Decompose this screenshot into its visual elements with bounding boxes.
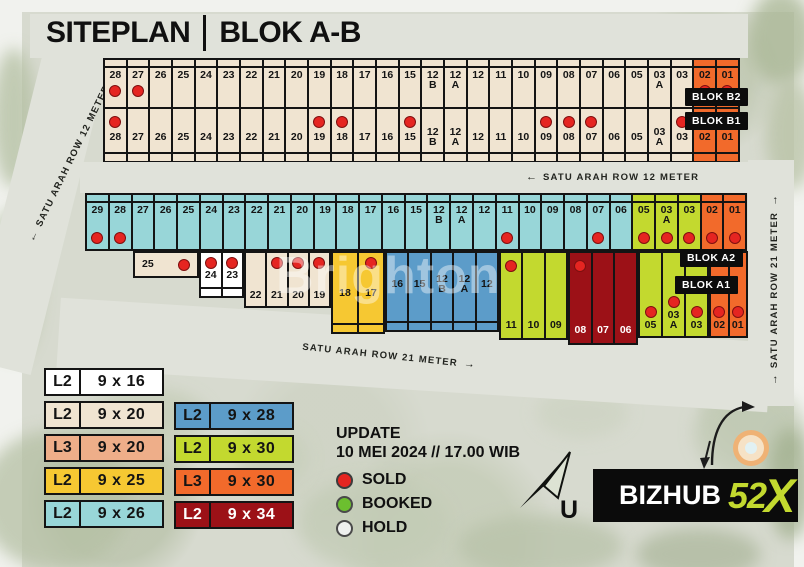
lot-number: 11: [502, 206, 513, 216]
lot-number: 21: [274, 206, 286, 216]
lot-number: 16: [382, 133, 394, 143]
lot-number: 26: [155, 133, 167, 143]
lot-cell-23: 23: [218, 60, 241, 107]
lot-front-strip: [264, 152, 285, 161]
lot-number: 25: [142, 260, 154, 270]
lot-front-strip: [581, 60, 602, 68]
lot-front-strip: [173, 152, 194, 161]
block-a1-group-4: 1817: [331, 251, 385, 334]
lot-cell-09: 09: [546, 253, 566, 338]
sold-dot: [638, 232, 650, 244]
lot-cell-20: 20: [292, 195, 315, 249]
update-block: UPDATE 10 MEI 2024 // 17.00 WIB SOLDBOOK…: [336, 425, 520, 543]
legend-type: L3: [46, 436, 81, 460]
lot-front-strip: [649, 152, 670, 161]
lot-cell-27: 27: [133, 195, 156, 249]
size-legend-column-2: L29 x 28L29 x 30L39 x 30L29 x 34: [174, 402, 294, 534]
sold-dot: [713, 306, 725, 318]
block-b2-row: 282726252423222120191817161512 B12 A1211…: [105, 60, 738, 109]
lot-front-strip: [196, 152, 217, 161]
lot-front-strip: [264, 60, 285, 68]
sold-dot: [563, 116, 575, 128]
lot-front-strip: [332, 60, 353, 68]
legend-size: 9 x 30: [211, 470, 292, 494]
lot-cell-21: 21: [264, 60, 287, 107]
lot-front-strip: [588, 195, 609, 203]
legend-size: 9 x 16: [81, 370, 162, 394]
title-divider: [203, 15, 206, 51]
lot-cell-06: 06: [604, 109, 627, 161]
lot-cell-15: 15: [400, 109, 423, 161]
lot-cell-06: 06: [611, 195, 634, 249]
lot-front-strip: [387, 321, 407, 330]
lot-cell-28: 28: [105, 109, 128, 161]
sold-dot: [501, 232, 513, 244]
lot-front-strip: [292, 195, 313, 203]
lot-front-strip: [611, 195, 632, 203]
lot-cell-11: 11: [490, 109, 513, 161]
lot-cell-06: 06: [615, 253, 636, 343]
lot-cell-08: 08: [565, 195, 588, 249]
lot-cell-07: 07: [593, 253, 616, 343]
lot-cell-16: 16: [377, 60, 400, 107]
legend-size: 9 x 20: [81, 403, 162, 427]
lot-cell-03A: 03 A: [649, 60, 672, 107]
block-a1-group-5: 161512 B12 A12: [385, 251, 499, 332]
lot-front-strip: [536, 152, 557, 161]
lot-front-strip: [354, 60, 375, 68]
lot-cell-05: 05: [640, 253, 663, 336]
lot-cell-12: 12: [468, 109, 491, 161]
lot-number: 03: [691, 321, 703, 331]
lot-front-strip: [173, 60, 194, 68]
lot-front-strip: [201, 287, 221, 296]
lot-cell-26: 26: [150, 109, 173, 161]
lot-cell-15: 15: [400, 60, 423, 107]
lot-cell-26: 26: [155, 195, 178, 249]
lot-number: 23: [223, 71, 235, 81]
lot-number: 25: [178, 71, 190, 81]
lot-cell-22: 22: [241, 60, 264, 107]
lot-front-strip: [128, 60, 149, 68]
logo-number-text: 52: [728, 475, 766, 517]
lot-front-strip: [241, 152, 262, 161]
lot-front-strip: [694, 60, 715, 68]
lot-front-strip: [128, 152, 149, 161]
lot-cell-08: 08: [558, 60, 581, 107]
lot-cell-07: 07: [581, 109, 604, 161]
lot-front-strip: [377, 152, 398, 161]
lot-number: 10: [518, 133, 530, 143]
legend-size: 9 x 34: [211, 503, 292, 527]
lot-cell-03A: 03 A: [656, 195, 679, 249]
lot-cell-23: 23: [223, 253, 243, 296]
lot-number: 11: [495, 133, 506, 143]
sold-dot: [592, 232, 604, 244]
lot-front-strip: [520, 195, 541, 203]
sold-dot: [645, 306, 657, 318]
road-middle-text: SATU ARAH ROW 12 METER: [543, 172, 699, 183]
lot-cell-18: 18: [332, 60, 355, 107]
lot-front-strip: [626, 60, 647, 68]
lot-front-strip: [604, 60, 625, 68]
lot-front-strip: [150, 60, 171, 68]
lot-number: 07: [592, 206, 604, 216]
lot-number: 01: [722, 71, 734, 81]
lot-cell-15: 15: [406, 195, 429, 249]
lot-front-strip: [513, 152, 534, 161]
lot-number: 09: [540, 133, 552, 143]
lot-front-strip: [105, 152, 126, 161]
lot-number: 25: [178, 133, 190, 143]
sold-dot: [691, 306, 703, 318]
lot-number: 17: [359, 71, 371, 81]
lot-number: 22: [246, 71, 258, 81]
page-title: SITEPLAN BLOK A-B: [46, 15, 361, 51]
lot-cell-05: 05: [633, 195, 656, 249]
lot-number: 12 B: [427, 71, 439, 91]
lot-cell-21: 21: [267, 253, 288, 306]
lot-cell-24: 24: [196, 60, 219, 107]
lot-cell-05: 05: [626, 60, 649, 107]
update-label: UPDATE: [336, 425, 520, 443]
lot-cell-24: 24: [196, 109, 219, 161]
legend-size: 9 x 28: [211, 404, 292, 428]
lot-number: 09: [540, 71, 552, 81]
lot-front-strip: [454, 321, 474, 330]
lot-front-strip: [87, 195, 108, 203]
lot-cell-20: 20: [286, 109, 309, 161]
legend-row-9x26: L29 x 26: [44, 500, 164, 528]
lot-number: 18: [342, 206, 354, 216]
lot-number: 16: [391, 280, 403, 290]
lot-front-strip: [474, 195, 495, 203]
sold-dot: [109, 85, 121, 97]
lot-cell-08: 08: [558, 109, 581, 161]
booked-circle-icon: [336, 496, 353, 513]
lot-cell-21: 21: [269, 195, 292, 249]
lot-front-strip: [513, 60, 534, 68]
lot-front-strip: [246, 195, 267, 203]
lot-cell-27: 27: [128, 109, 151, 161]
lot-front-strip: [558, 152, 579, 161]
lot-front-strip: [241, 60, 262, 68]
lot-cell-25: 25: [173, 109, 196, 161]
legend-type: L2: [46, 403, 81, 427]
lot-cell-12: 12: [474, 195, 497, 249]
lot-cell-06: 06: [604, 60, 627, 107]
lot-number: 16: [382, 71, 394, 81]
lot-number: 18: [336, 133, 348, 143]
lot-number: 20: [291, 71, 303, 81]
lot-number: 05: [645, 321, 657, 331]
lot-number: 16: [387, 206, 399, 216]
lot-cell-11: 11: [497, 195, 520, 249]
legend-type: L2: [176, 503, 211, 527]
blok-b2-label: BLOK B2: [685, 88, 748, 106]
sold-dot: [114, 232, 126, 244]
lot-cell-27: 27: [128, 60, 151, 107]
lot-number: 23: [223, 133, 235, 143]
lot-front-strip: [218, 60, 239, 68]
lot-front-strip: [178, 195, 199, 203]
lot-number: 24: [205, 271, 217, 281]
lot-number: 26: [160, 206, 172, 216]
lot-number: 20: [292, 291, 304, 301]
lot-front-strip: [422, 152, 443, 161]
road-right-text: SATU ARAH ROW 21 METER: [769, 212, 780, 368]
sold-dot: [205, 257, 217, 269]
lot-cell-12B: 12 B: [432, 253, 454, 330]
lot-number: 19: [314, 71, 326, 81]
lot-number: 01: [729, 206, 741, 216]
lot-front-strip: [428, 195, 449, 203]
logo-x-text: X: [764, 472, 795, 519]
lot-front-strip: [332, 152, 353, 161]
lot-cell-25: 25: [173, 60, 196, 107]
lot-number: 22: [251, 206, 263, 216]
lot-number: 06: [620, 326, 632, 336]
lot-number: 03: [683, 206, 695, 216]
lot-front-strip: [565, 195, 586, 203]
lot-cell-12A: 12 A: [451, 195, 474, 249]
block-a1-group-6: 111009: [499, 251, 568, 340]
lot-front-strip: [542, 195, 563, 203]
lot-front-strip: [309, 60, 330, 68]
lot-cell-16: 16: [383, 195, 406, 249]
lot-number: 19: [319, 206, 331, 216]
lot-number: 17: [359, 133, 371, 143]
lot-front-strip: [477, 321, 497, 330]
blok-b1-label: BLOK B1: [685, 112, 748, 130]
lot-number: 19: [314, 133, 326, 143]
lot-number: 12 A: [459, 275, 471, 295]
lot-front-strip: [626, 152, 647, 161]
lot-front-strip: [717, 152, 738, 161]
lot-front-strip: [224, 195, 245, 203]
lot-number: 08: [563, 71, 575, 81]
sold-dot: [404, 116, 416, 128]
lot-number: 28: [109, 71, 121, 81]
lot-cell-09: 09: [536, 109, 559, 161]
lot-number: 24: [205, 206, 217, 216]
lot-number: 21: [268, 133, 280, 143]
lot-cell-22: 22: [241, 109, 264, 161]
arrow-right-icon: →: [463, 358, 475, 371]
lot-number: 12: [479, 206, 491, 216]
lot-front-strip: [400, 152, 421, 161]
sold-dot: [91, 232, 103, 244]
lot-cell-25: 25: [135, 253, 197, 276]
lot-front-strip: [155, 195, 176, 203]
lot-front-strip: [694, 152, 715, 161]
lot-front-strip: [468, 60, 489, 68]
north-label: U: [560, 496, 578, 525]
legend-type: L2: [176, 404, 211, 428]
lot-cell-22: 22: [246, 253, 267, 306]
lot-number: 03 A: [654, 71, 666, 91]
legend-type: L2: [46, 370, 81, 394]
lot-cell-17: 17: [354, 109, 377, 161]
lot-front-strip: [468, 152, 489, 161]
lot-cell-21: 21: [264, 109, 287, 161]
lot-cell-12A: 12 A: [454, 253, 476, 330]
lot-number: 21: [268, 71, 280, 81]
lot-cell-23: 23: [224, 195, 247, 249]
status-legend: SOLDBOOKEDHOLD: [336, 471, 520, 537]
lot-number: 05: [638, 206, 650, 216]
lot-number: 12 B: [427, 128, 439, 148]
lot-front-strip: [679, 195, 700, 203]
lot-front-strip: [445, 60, 466, 68]
lot-number: 01: [732, 321, 744, 331]
legend-type: L2: [176, 437, 211, 461]
block-a1-group-3: 22212019: [244, 251, 331, 308]
lot-cell-20: 20: [286, 60, 309, 107]
lot-cell-20: 20: [289, 253, 310, 306]
sold-dot: [668, 296, 680, 308]
lot-front-strip: [445, 152, 466, 161]
lot-cell-29: 29: [87, 195, 110, 249]
lot-number: 06: [608, 133, 620, 143]
sold-dot: [661, 232, 673, 244]
lot-cell-11: 11: [490, 60, 513, 107]
sold-dot: [178, 259, 190, 271]
lot-cell-03A: 03 A: [649, 109, 672, 161]
lot-front-strip: [656, 195, 677, 203]
lot-front-strip: [377, 60, 398, 68]
arrow-up-icon: →: [768, 195, 780, 206]
lot-cell-07: 07: [588, 195, 611, 249]
lot-cell-08: 08: [570, 253, 593, 343]
road-label-middle: ←SATU ARAH ROW 12 METER: [520, 171, 699, 183]
lot-cell-12: 12: [468, 60, 491, 107]
block-b1-row: 282726252423222120191817161512 B12 A1211…: [105, 109, 738, 161]
lot-number: 09: [550, 321, 562, 331]
lot-cell-02: 02: [702, 195, 725, 249]
legend-type: L3: [176, 470, 211, 494]
lot-front-strip: [490, 152, 511, 161]
sold-dot: [505, 260, 517, 272]
lot-front-strip: [315, 195, 336, 203]
block-a2-row: 29282726252423222120191817161512 B12 A12…: [85, 193, 747, 251]
lot-front-strip: [581, 152, 602, 161]
lot-cell-15: 15: [409, 253, 431, 330]
sold-dot: [336, 116, 348, 128]
sold-dot: [574, 260, 586, 272]
lot-number: 12: [472, 133, 484, 143]
sold-dot: [729, 232, 741, 244]
sold-dot: [271, 257, 283, 269]
blok-a1-label: BLOK A1: [675, 276, 738, 294]
sold-dot: [132, 85, 144, 97]
lot-cell-07: 07: [581, 60, 604, 107]
lot-cell-28: 28: [110, 195, 133, 249]
legend-row-9x30: L39 x 30: [174, 468, 294, 496]
lot-cell-03: 03: [679, 195, 702, 249]
block-a1-group-2: 2423: [199, 251, 244, 298]
lot-front-strip: [354, 152, 375, 161]
lot-number: 10: [524, 206, 536, 216]
lot-cell-25: 25: [178, 195, 201, 249]
lot-number: 12: [481, 280, 493, 290]
sold-circle-icon: [336, 472, 353, 489]
lot-cell-12B: 12 B: [422, 60, 445, 107]
hold-circle-icon: [336, 520, 353, 537]
lot-cell-17: 17: [360, 195, 383, 249]
lot-number: 06: [608, 71, 620, 81]
legend-row-9x16: L29 x 16: [44, 368, 164, 396]
lot-number: 15: [410, 206, 422, 216]
lot-cell-28: 28: [105, 60, 128, 107]
lot-front-strip: [269, 195, 290, 203]
lot-front-strip: [337, 195, 358, 203]
legend-size: 9 x 25: [81, 469, 162, 493]
sold-dot: [732, 306, 744, 318]
lot-front-strip: [286, 60, 307, 68]
lot-cell-12B: 12 B: [428, 195, 451, 249]
lot-front-strip: [451, 195, 472, 203]
lot-number: 18: [339, 289, 351, 299]
lot-number: 05: [631, 133, 643, 143]
lot-front-strip: [604, 152, 625, 161]
lot-number: 25: [183, 206, 195, 216]
lot-number: 11: [495, 71, 506, 81]
lot-cell-17: 17: [354, 60, 377, 107]
lot-number: 05: [631, 71, 643, 81]
sold-dot: [313, 116, 325, 128]
lot-front-strip: [383, 195, 404, 203]
lot-cell-23: 23: [218, 109, 241, 161]
lot-number: 27: [132, 71, 144, 81]
lot-front-strip: [105, 60, 126, 68]
lot-cell-24: 24: [201, 253, 223, 296]
lot-front-strip: [286, 152, 307, 161]
lot-front-strip: [717, 60, 738, 68]
lot-front-strip: [432, 321, 452, 330]
legend-row-9x30: L29 x 30: [174, 435, 294, 463]
legend-row-9x20: L29 x 20: [44, 401, 164, 429]
status-item-sold: SOLD: [336, 471, 520, 489]
lot-number: 03 A: [668, 311, 680, 331]
legend-size: 9 x 20: [81, 436, 162, 460]
lot-number: 01: [722, 133, 734, 143]
sold-dot: [226, 257, 238, 269]
lot-cell-18: 18: [332, 109, 355, 161]
block-a1-group-1: 25: [133, 251, 199, 278]
lot-cell-26: 26: [150, 60, 173, 107]
lot-front-strip: [422, 60, 443, 68]
sold-dot: [683, 232, 695, 244]
lot-front-strip: [150, 152, 171, 161]
lot-number: 12 A: [450, 71, 462, 91]
lot-front-strip: [196, 60, 217, 68]
lot-number: 21: [271, 291, 283, 301]
legend-type: L2: [46, 469, 81, 493]
status-item-booked: BOOKED: [336, 495, 520, 513]
lot-front-strip: [558, 60, 579, 68]
bizhub-logo: BIZHUB 52 X: [593, 469, 798, 522]
lot-number: 03 A: [654, 128, 666, 148]
lot-front-strip: [400, 60, 421, 68]
lot-front-strip: [133, 195, 154, 203]
lot-front-strip: [201, 195, 222, 203]
lot-number: 23: [226, 271, 238, 281]
lot-front-strip: [218, 152, 239, 161]
size-legend-column-1: L29 x 16L29 x 20L39 x 20L29 x 25L29 x 26: [44, 368, 164, 533]
lot-cell-24: 24: [201, 195, 224, 249]
lot-cell-22: 22: [246, 195, 269, 249]
